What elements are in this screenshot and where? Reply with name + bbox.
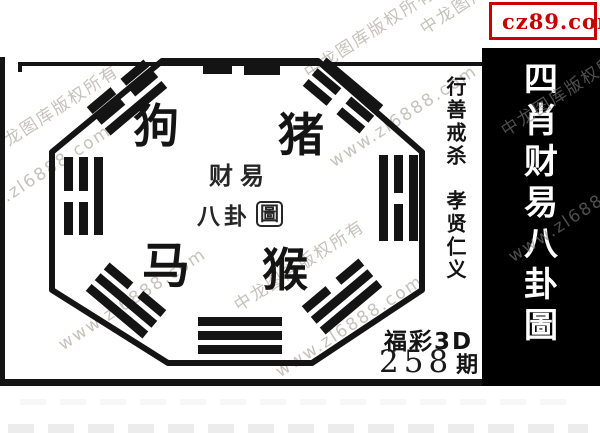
- motto-line1: 行善戒杀: [441, 76, 470, 172]
- trigram-left: [64, 157, 103, 235]
- animal-dog: 狗: [133, 103, 179, 149]
- panel-title-char: 卦: [524, 265, 558, 306]
- panel-title-char: 圖: [524, 306, 558, 347]
- trigram-top-segment: [203, 65, 232, 74]
- seal-line1: 财易: [190, 156, 290, 191]
- bagua-chart-image: 中龙图库版权所有 www.zl6888.com 中龙图库版权所有 www.zl6…: [0, 0, 600, 433]
- motto-line2: 孝贤仁义: [441, 190, 470, 286]
- center-seal: 财易 八卦 圖: [190, 156, 290, 231]
- issue-suffix: 期: [456, 347, 478, 379]
- animal-pig: 猪: [278, 112, 324, 158]
- issue-number: 258: [379, 344, 453, 380]
- trigram-right: [379, 155, 418, 241]
- faint-bottom-text: [8, 424, 588, 433]
- trigram-bottom: [198, 317, 282, 354]
- seal-line2: 八卦: [197, 197, 251, 231]
- badge-site-label: cz89.com: [502, 9, 600, 34]
- animal-monkey: 猴: [262, 247, 308, 293]
- seal-boxed-char: 圖: [256, 201, 283, 227]
- site-badge[interactable]: cz89.com: [489, 2, 597, 40]
- faint-bottom-text: [20, 399, 575, 405]
- issue-info: 258 期: [379, 344, 478, 380]
- animal-horse: 马: [142, 242, 190, 290]
- panel-title-char: 财: [524, 142, 558, 183]
- trigram-top-segment: [244, 65, 280, 75]
